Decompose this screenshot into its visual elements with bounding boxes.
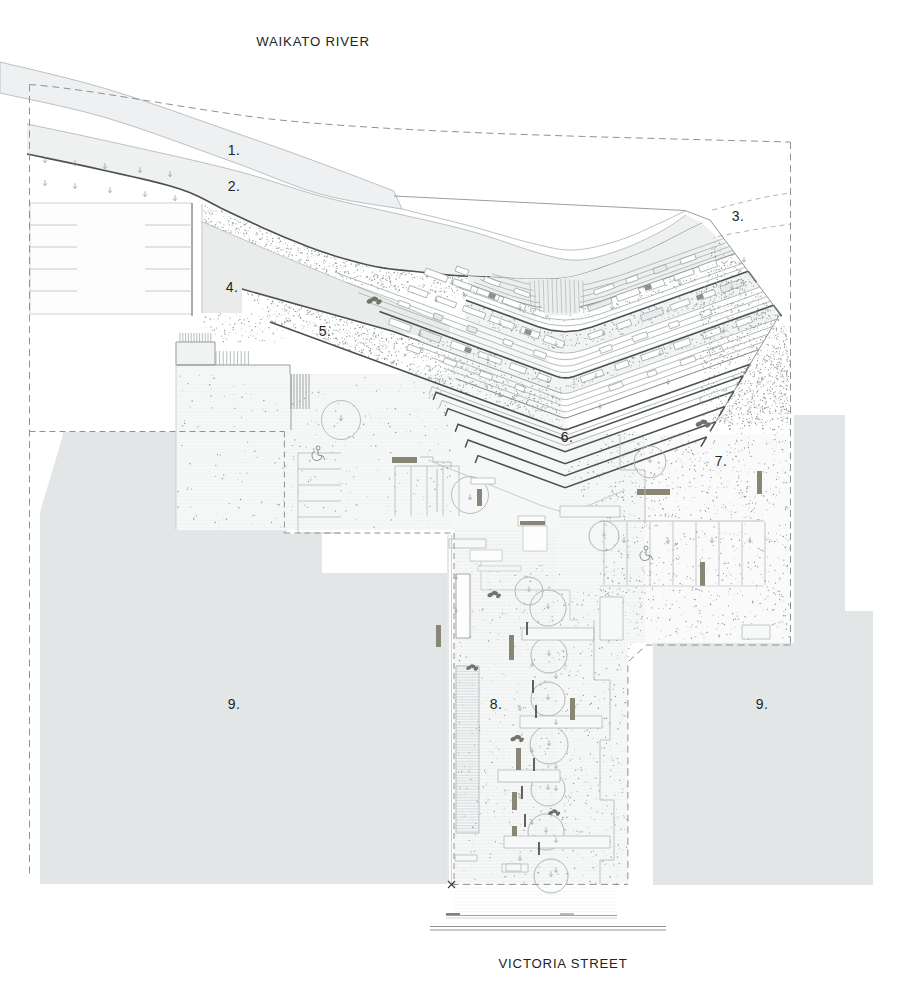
- svg-text:5.: 5.: [319, 323, 331, 339]
- svg-text:8.: 8.: [490, 696, 502, 712]
- svg-text:WAIKATO RIVER: WAIKATO RIVER: [256, 34, 369, 49]
- svg-text:9.: 9.: [756, 696, 768, 712]
- svg-text:2.: 2.: [228, 178, 240, 194]
- svg-text:9.: 9.: [228, 696, 240, 712]
- svg-text:6.: 6.: [561, 429, 573, 445]
- svg-text:4.: 4.: [226, 279, 238, 295]
- svg-text:3.: 3.: [732, 208, 744, 224]
- svg-text:7.: 7.: [715, 453, 727, 469]
- svg-text:1.: 1.: [228, 142, 240, 158]
- svg-text:VICTORIA STREET: VICTORIA STREET: [499, 956, 628, 971]
